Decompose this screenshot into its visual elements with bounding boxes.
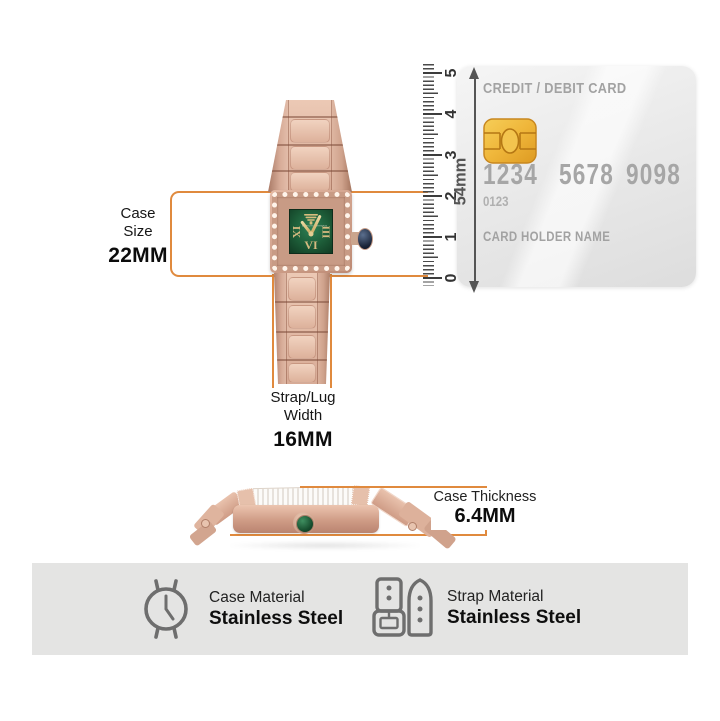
dial-center-dot [309, 231, 314, 236]
watch-spec-infographic: Case Size 22MM Strap/Lug Width 16MM [0, 0, 720, 721]
ruler-number: 0 [444, 269, 460, 287]
case-size-label-line1: Case [90, 205, 186, 223]
card-height-label: 54mm [450, 154, 472, 208]
arrow-down-head [469, 281, 479, 293]
strap-material-value: Stainless Steel [447, 606, 581, 629]
watch-bracelet-upper [268, 100, 352, 192]
case-material-item: Case Material Stainless Steel [136, 577, 343, 641]
dial-numeral-3: III [320, 225, 332, 238]
case-material-label: Case Material [209, 588, 343, 607]
watch-case: EMPORIO ARMANI IX III VI [270, 190, 352, 273]
strap-width-line-right [330, 274, 332, 388]
case-thickness-label: Case Thickness 6.4MM [431, 488, 539, 530]
strap-material-text: Strap Material Stainless Steel [447, 587, 581, 629]
strap-width-label-line1: Strap/Lug [255, 389, 351, 407]
case-thickness-text: Case Thickness [431, 489, 539, 505]
case-thickness-value: 6.4MM [431, 505, 539, 528]
ruler-number: 1 [444, 228, 460, 246]
materials-band: Case Material Stainless Steel Str [32, 563, 688, 655]
arrow-up-head [469, 67, 479, 79]
card-number-group: 9098 [626, 159, 681, 192]
watch-strap-icon [372, 576, 434, 640]
dial-numeral-9: IX [290, 225, 302, 237]
watch-crown-cabochon [357, 228, 373, 250]
side-link-pin [201, 519, 210, 528]
strap-width-label: Strap/Lug Width 16MM [255, 389, 351, 452]
ruler-number: 4 [444, 105, 460, 123]
ruler-tick-major [423, 195, 442, 197]
ruler-tick-major [423, 154, 442, 156]
ruler-tick-major [423, 236, 442, 238]
dial-numeral-6: VI [290, 238, 332, 253]
watch-dial: EMPORIO ARMANI IX III VI [289, 209, 333, 254]
strap-material-label: Strap Material [447, 587, 581, 606]
case-size-value: 22MM [90, 244, 186, 268]
watch-bracelet-lower [272, 273, 332, 384]
card-title: CREDIT / DEBIT CARD [483, 81, 627, 97]
card-number-group: 1234 [483, 159, 538, 192]
card-holder-label: CARD HOLDER NAME [483, 229, 610, 244]
strap-width-value: 16MM [255, 428, 351, 452]
case-size-label: Case Size 22MM [90, 205, 186, 268]
side-view-shadow [224, 541, 426, 550]
side-bezel-cap [351, 485, 371, 507]
card-height-arrow-line [474, 78, 476, 282]
watch-case-icon [136, 577, 196, 641]
watch-crystal-bezel: EMPORIO ARMANI IX III VI [272, 192, 350, 271]
strap-width-label-line2: Width [255, 407, 351, 425]
strap-material-item: Strap Material Stainless Steel [372, 576, 581, 640]
ruler-tick-major [423, 277, 442, 279]
ruler-tick-major [423, 113, 442, 115]
ruler-number: 5 [444, 64, 460, 82]
card-sub-number: 0123 [483, 194, 509, 209]
case-material-value: Stainless Steel [209, 607, 343, 630]
case-size-label-line2: Size [90, 223, 186, 241]
card-chip-icon [483, 118, 537, 164]
ruler-half-ticks [423, 72, 438, 280]
card-number-group: 5678 [559, 159, 614, 192]
strap-width-line-left [272, 274, 274, 388]
side-crown-cabochon [296, 515, 314, 533]
credit-card: CREDIT / DEBIT CARD 1234 5678 9098 0123 … [457, 66, 696, 287]
case-material-text: Case Material Stainless Steel [209, 588, 343, 630]
side-link-pin [408, 522, 417, 531]
ruler-tick-major [423, 72, 442, 74]
